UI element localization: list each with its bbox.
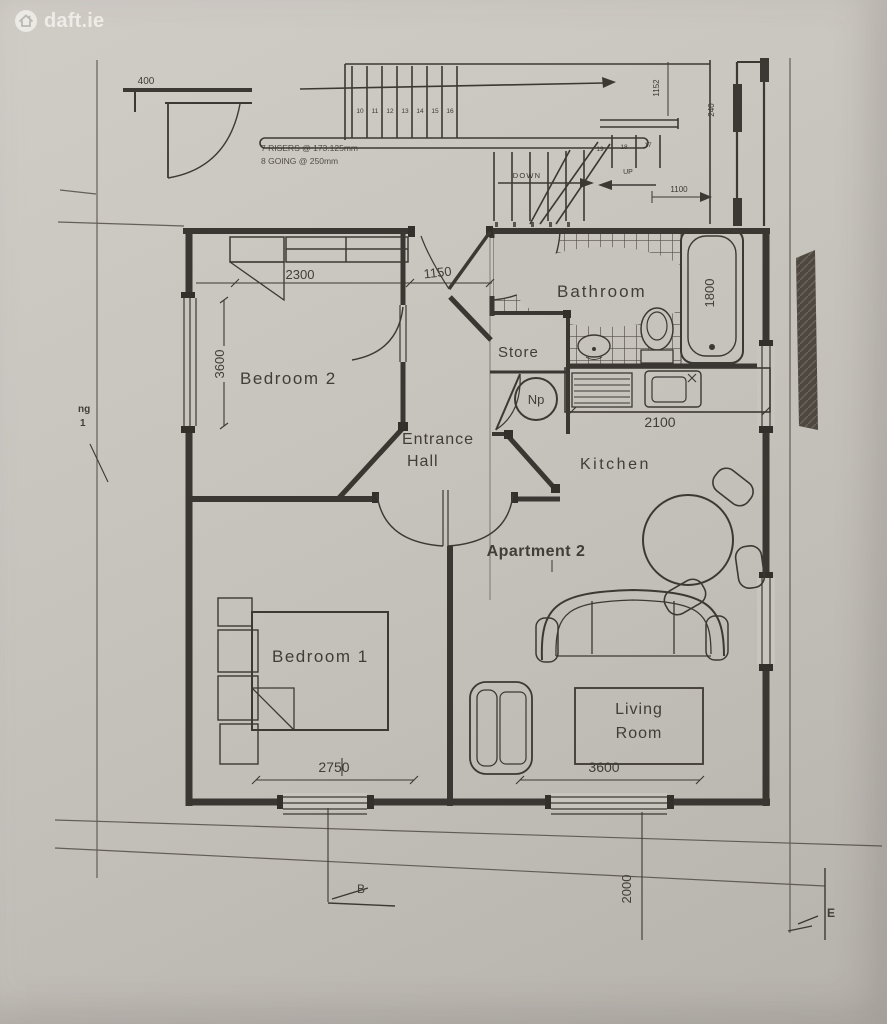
section-marker-b: B	[357, 882, 365, 896]
up-direction-arrowhead	[602, 77, 616, 88]
scanned-floor-plan-page: { "source": { "watermark": "daft.ie" }, …	[0, 0, 887, 1024]
dim-hall-width: 1150	[423, 264, 452, 282]
label-hot-press: Np	[528, 392, 545, 407]
dim-kitchen-counter: 2100	[644, 414, 675, 430]
dim-living-width: 3600	[588, 759, 619, 775]
wardrobe-bedroom2	[230, 237, 408, 300]
dim-landing: 1152	[652, 79, 661, 97]
dim-entry-wall: 400	[138, 76, 155, 87]
dim-bath-length: 1800	[702, 279, 717, 308]
paper-edge-shadow	[796, 250, 818, 430]
stairs-up-label: UP	[623, 169, 633, 176]
sofa	[536, 590, 728, 662]
tread-number: 10	[356, 108, 364, 115]
label-living-room-1: Living	[615, 701, 663, 718]
stairs-going-note: 8 GOING @ 250mm	[261, 156, 338, 166]
kitchen-counter	[565, 368, 770, 412]
dining-table	[643, 464, 766, 619]
stairs-riser-note: 7 RISERS @ 173.125mm	[261, 143, 358, 153]
kitchen-sink	[645, 371, 701, 407]
tread-number: 12	[386, 108, 394, 115]
dim-bedroom1-width: 2750	[318, 759, 349, 775]
label-entrance-hall-2: Hall	[407, 453, 439, 470]
label-living-room-2: Room	[616, 725, 663, 742]
up-arrowhead	[598, 180, 612, 190]
label-bathroom: Bathroom	[557, 282, 647, 301]
left-margin-note-1: ng	[78, 404, 90, 415]
stairs-down-label: DOWN	[513, 171, 542, 180]
tread-number: 19	[596, 146, 604, 153]
daft-logo: daft.ie	[14, 9, 104, 33]
label-entrance-hall-1: Entrance	[402, 431, 474, 448]
label-store: Store	[498, 344, 539, 361]
label-kitchen: Kitchen	[580, 456, 651, 473]
tread-number: 11	[372, 108, 379, 115]
dim-bedroom2-depth: 3600	[212, 350, 227, 379]
dim-stairwell: 1100	[670, 185, 688, 194]
tread-number: 13	[401, 108, 409, 115]
dim-bedroom2-width: 2300	[286, 267, 315, 282]
daft-logo-text: daft.ie	[44, 10, 104, 33]
tread-number: 17	[644, 142, 652, 149]
bed-bedroom1	[252, 612, 388, 730]
left-margin-note-2: 1	[80, 418, 86, 429]
cooker	[572, 373, 632, 407]
tread-number: 18	[620, 144, 628, 151]
label-bedroom1: Bedroom 1	[272, 647, 369, 666]
dim-wall-return: 240	[707, 103, 716, 117]
label-bedroom2: Bedroom 2	[240, 369, 337, 388]
armchair	[470, 682, 532, 774]
staircase: 10 11 12 13 14 15 16 19 18 17 DOWN UP 7 …	[260, 58, 769, 227]
floor-plan-drawing: 400	[0, 0, 887, 1024]
entry-door-top-left	[123, 90, 252, 178]
section-marker-e: E	[827, 906, 835, 920]
dim-ground-offset: 2000	[619, 875, 634, 904]
tread-number: 16	[446, 108, 454, 115]
label-apartment: Apartment 2	[487, 543, 586, 560]
toilet	[641, 308, 673, 363]
tread-number: 15	[431, 108, 439, 115]
daft-house-icon	[14, 9, 38, 33]
tread-number: 14	[416, 108, 424, 115]
